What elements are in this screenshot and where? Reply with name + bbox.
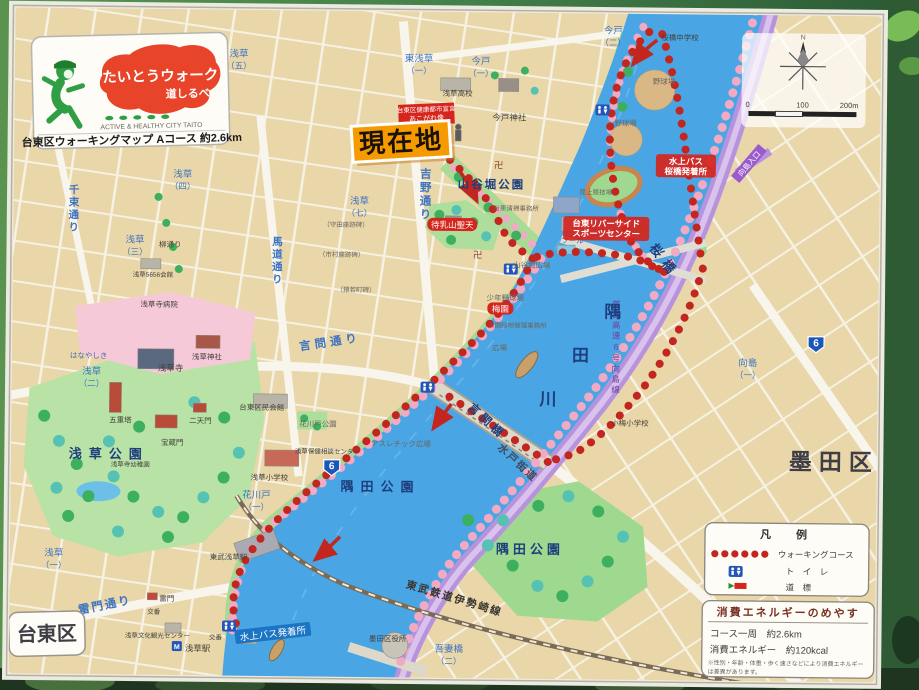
park-hanakawado-label: 花川戸公園	[299, 418, 337, 428]
tobu-asakusa-label: 東武浅草駅	[210, 551, 248, 561]
matsuchiyama-label: 待乳山聖天	[427, 218, 477, 232]
kaminarimon-building	[147, 593, 157, 600]
koban2-label: 交番	[209, 632, 223, 641]
energy-calories: 消費エネルギー 約120kcal	[710, 644, 828, 657]
svg-text:（一）: （一）	[468, 68, 494, 78]
baien-label: 梅園	[487, 302, 513, 314]
athletic-plaza-label: アスレチック広場	[371, 438, 432, 449]
hanayashiki-label: はなやしき	[70, 351, 108, 360]
sakurabashi-pier-label: 水上バス 桜橋発着所	[656, 154, 716, 178]
energy-distance: コース一周 約2.6km	[710, 628, 802, 641]
asakusa-jinja-label: 浅草神社	[192, 351, 223, 361]
ballpark2-label: 野球場	[614, 118, 637, 128]
road-senzoku: 千束通り	[67, 183, 80, 234]
imado-jinja-building	[499, 78, 519, 91]
legend-course-label: ウォーキングコース	[778, 549, 854, 560]
svg-text:台東区: 台東区	[17, 621, 78, 646]
svg-text:（七）: （七）	[347, 208, 373, 218]
track-label: 陸上競技場	[580, 187, 613, 196]
riverside-center-label: 台東リバーサイド スポーツセンター	[563, 216, 649, 241]
svg-text:スポーツセンター: スポーツセンター	[572, 228, 640, 239]
svg-text:（一）: （一）	[243, 502, 269, 512]
legend-toilet-label: ト イ レ	[786, 566, 829, 576]
legend-signpost-label: 道 標	[785, 582, 811, 592]
ballpark-field-2	[610, 124, 642, 156]
monument-ichimura: （市村座跡碑）	[319, 250, 365, 259]
svg-text:6: 6	[329, 461, 335, 472]
gojunoto-building	[109, 382, 121, 412]
svg-text:M: M	[174, 644, 180, 651]
svg-text:向島: 向島	[738, 357, 757, 369]
plaza-label: 広場	[492, 342, 508, 352]
current-location-marker: 現在地	[351, 120, 455, 166]
park-sanyabori-label: 山谷堀公園	[458, 177, 526, 192]
svg-text:200m: 200m	[840, 101, 859, 110]
akogare-statue	[455, 124, 461, 141]
road-umamichi: 馬道通り	[271, 236, 284, 286]
river-name-char: 隅	[604, 303, 621, 322]
ballpark1-label: 野球場	[653, 76, 676, 86]
road-yanagi: 柳通り	[159, 239, 182, 249]
svg-text:（五）: （五）	[226, 61, 252, 71]
bridge-azuma-label: 吾妻橋	[434, 643, 463, 655]
svg-text:今戸: 今戸	[604, 24, 623, 36]
monument-saruwaka: （猿若町碑）	[337, 285, 376, 294]
asakusa-jinja-building	[196, 335, 220, 348]
svg-text:桜橋発着所: 桜橋発着所	[665, 166, 708, 176]
kaminarimon-gate-label: 雷門	[159, 594, 174, 603]
legend-toilet-icon	[729, 566, 743, 577]
sumida-office-label: 墨田区役所	[369, 633, 407, 643]
compass-scale-box: N 0 100 200m	[741, 33, 866, 128]
svg-text:浅草: 浅草	[126, 234, 145, 246]
legend-title: 凡 例	[760, 527, 814, 542]
hozomon-label: 宝蔵門	[161, 437, 184, 447]
park-sumida-left-label: 隅田公園	[340, 479, 420, 495]
asakusa-station-label: 浅草駅	[185, 643, 211, 653]
svg-text:（三）: （三）	[122, 246, 148, 256]
svg-text:浅草: 浅草	[173, 168, 192, 180]
svg-text:（一）: （一）	[41, 560, 67, 570]
svg-text:花川戸: 花川戸	[242, 489, 271, 501]
svg-text:0: 0	[745, 100, 749, 109]
asakusa5656-label: 浅草5656会館	[133, 270, 174, 279]
asakusa-es-label: 浅草小学校	[251, 472, 289, 482]
bunka-center-building	[165, 623, 181, 633]
bridge-azuma-label2: （二）	[436, 656, 462, 666]
walking-map-sign: 6 6 M 卍 卍 吉野通り 馬道通り 千束通り 言問通り 雷門通り 柳通り 水…	[0, 0, 919, 690]
river-name-char: 川	[538, 390, 556, 409]
manji-icon: 卍	[473, 250, 483, 261]
compass-north: N	[801, 35, 806, 42]
koume-es-label: 小梅小学校	[611, 418, 649, 428]
metro-icon: M	[172, 641, 182, 651]
nitenmon-label: 二天門	[189, 416, 212, 425]
sanyabori-square-label: 山谷堀広場	[513, 260, 551, 270]
svg-text:浅草: 浅草	[82, 365, 101, 377]
sensoji-hospital-label: 浅草寺病院	[140, 299, 178, 309]
svg-text:梅園: 梅園	[492, 304, 509, 314]
toilet-icon	[595, 104, 609, 115]
title-badge: たいとうウォーク 道しるべ ACTIVE & HEALTHY CITY TAIT…	[19, 32, 242, 149]
river-name-char: 田	[572, 346, 589, 365]
kumin-hall-label: 台東区民会館	[239, 402, 284, 412]
taito-ward-label: 台東区	[8, 611, 85, 657]
svg-text:今戸: 今戸	[471, 55, 490, 67]
asakusa5656-building	[141, 259, 161, 269]
imado-jinja-label: 今戸神社	[492, 112, 527, 122]
sumida-ward-label: 墨田区	[789, 448, 879, 475]
svg-text:台東リバーサイド: 台東リバーサイド	[572, 218, 640, 229]
signboard-photo: 6 6 M 卍 卍 吉野通り 馬道通り 千束通り 言問通り 雷門通り 柳通り 水…	[0, 0, 919, 690]
asakusa-es-building	[265, 450, 299, 466]
frame-right-band	[882, 0, 919, 690]
sakurabashi-jhs-label: 桜橋中学校	[661, 32, 699, 42]
svg-text:（一）: （一）	[735, 370, 761, 380]
svg-text:浅草: 浅草	[229, 48, 248, 60]
sensoji-label: 浅草寺	[158, 363, 184, 373]
legend-box: 凡 例 ウォーキングコース ト イ レ 道 標	[704, 523, 869, 597]
svg-text:（四）: （四）	[170, 181, 196, 191]
svg-text:6: 6	[813, 338, 819, 349]
badge-subtitle: 道しるべ	[166, 86, 210, 101]
gojunoto-label: 五重塔	[109, 414, 132, 424]
svg-text:待乳山聖天: 待乳山聖天	[431, 220, 474, 230]
svg-text:（二）: （二）	[79, 378, 105, 388]
badge-title: たいとうウォーク	[102, 66, 218, 86]
hozomon-building	[155, 415, 177, 428]
svg-text:浅草: 浅草	[350, 195, 369, 207]
ballpark-field-1	[634, 70, 674, 110]
road-yoshino: 吉野通り	[418, 167, 431, 222]
sports-center-building	[553, 197, 579, 213]
energy-title: 消費エネルギーのめやす	[717, 605, 860, 620]
toilet-icon	[420, 382, 434, 393]
svg-text:水上バス: 水上バス	[668, 156, 703, 166]
energy-box: 消費エネルギーのめやす コース一周 約2.6km 消費エネルギー 約120kca…	[702, 601, 875, 679]
svg-text:（二）: （二）	[600, 37, 626, 47]
park-sumida-right-label: 隅田公園	[496, 541, 564, 557]
manji-icon: 卍	[494, 160, 504, 171]
koban1-label: 交番	[147, 607, 161, 616]
svg-text:現在地: 現在地	[358, 124, 444, 159]
asakusa-hs-label: 浅草高校	[443, 88, 474, 98]
svg-text:浅草: 浅草	[44, 547, 63, 559]
svg-text:東浅草: 東浅草	[405, 52, 434, 64]
sensoji-kindergarten-label: 浅草寺幼稚園	[111, 459, 150, 468]
nitenmon-building	[193, 403, 206, 412]
toilet-icon	[222, 621, 236, 632]
shonen-ballpark-label: 少年野球場	[486, 292, 524, 302]
svg-text:100: 100	[796, 101, 809, 110]
park-asakusa-label: 浅草公園	[69, 446, 149, 462]
svg-text:（一）: （一）	[406, 65, 432, 75]
monument-morita: （守田座跡碑）	[323, 220, 369, 229]
